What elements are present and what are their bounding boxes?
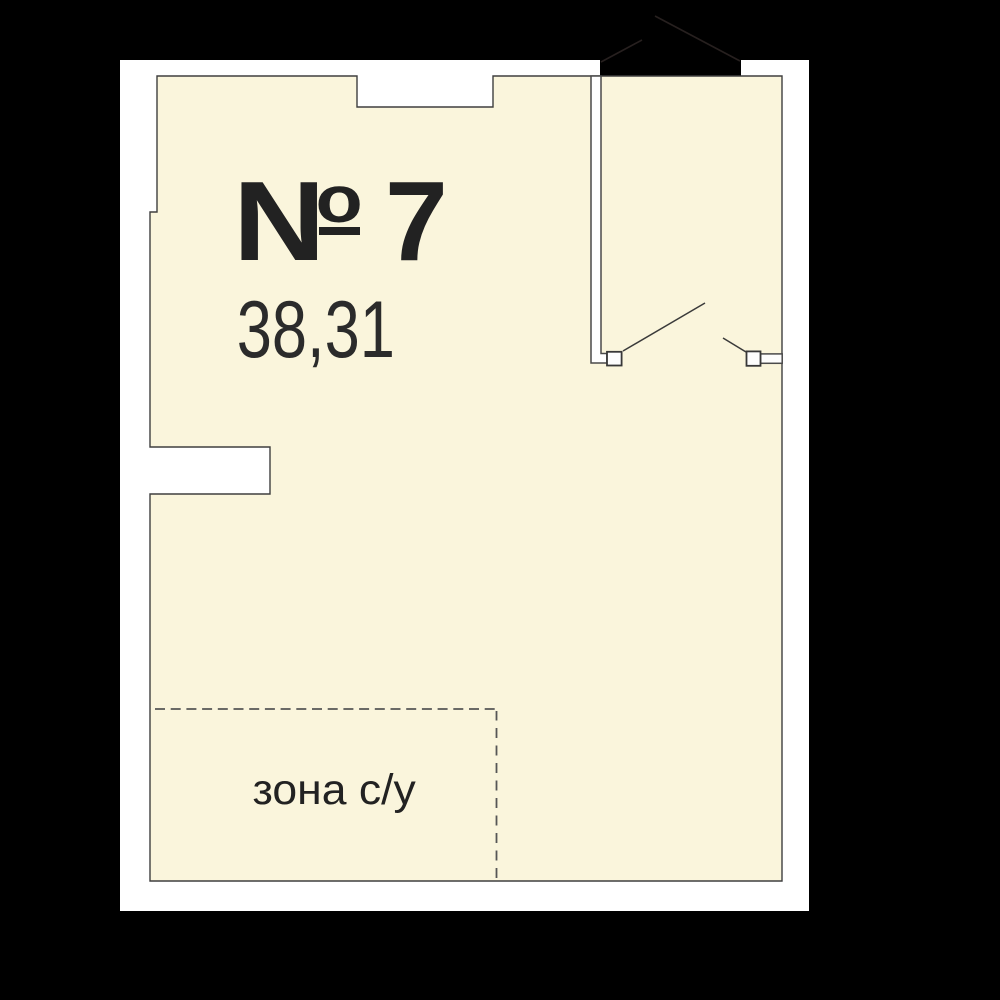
svg-text:N: N bbox=[233, 158, 326, 284]
svg-text:o: o bbox=[316, 163, 363, 236]
svg-text:38,31: 38,31 bbox=[237, 285, 395, 375]
svg-text:зона с/у: зона с/у bbox=[253, 766, 416, 814]
svg-text:7: 7 bbox=[385, 158, 448, 284]
